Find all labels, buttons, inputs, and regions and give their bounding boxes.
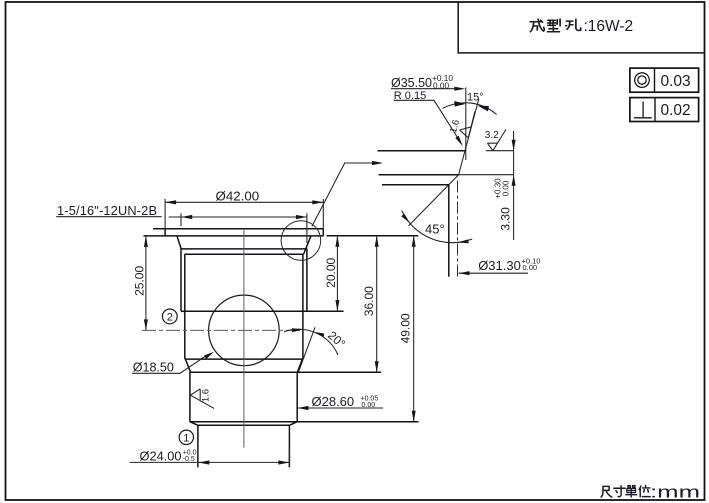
svg-text:Ø24.00: Ø24.00 xyxy=(140,448,182,463)
svg-text:2: 2 xyxy=(167,311,173,323)
svg-text:0.02: 0.02 xyxy=(661,102,691,119)
svg-text:15°: 15° xyxy=(467,92,484,104)
svg-text:3.30: 3.30 xyxy=(499,207,513,231)
svg-text:-0.5: -0.5 xyxy=(183,456,195,463)
svg-text:Ø28.60: Ø28.60 xyxy=(312,394,355,409)
svg-text:Ø18.50: Ø18.50 xyxy=(133,360,174,374)
svg-text:25.00: 25.00 xyxy=(133,266,147,296)
svg-text:1-5/16"-12UN-2B: 1-5/16"-12UN-2B xyxy=(57,203,157,218)
svg-text:45°: 45° xyxy=(425,222,445,237)
svg-text:0.00: 0.00 xyxy=(523,263,538,272)
svg-text::mm: :mm xyxy=(650,483,700,502)
svg-text:R 0.15: R 0.15 xyxy=(394,90,426,102)
svg-text:0.00: 0.00 xyxy=(362,402,376,409)
svg-text:3.2: 3.2 xyxy=(485,130,499,141)
svg-text:0.00: 0.00 xyxy=(433,80,450,90)
svg-text:0.03: 0.03 xyxy=(661,73,691,90)
svg-text:20.00: 20.00 xyxy=(324,257,338,287)
svg-text:49.00: 49.00 xyxy=(398,313,412,343)
svg-text:1.6: 1.6 xyxy=(201,389,212,402)
svg-text:0.00: 0.00 xyxy=(501,180,510,196)
svg-text:Ø31.30: Ø31.30 xyxy=(478,258,521,273)
svg-text::16W-2: :16W-2 xyxy=(584,18,634,35)
svg-text:36.00: 36.00 xyxy=(362,286,376,316)
svg-text:1: 1 xyxy=(183,432,189,444)
svg-text:Ø42.00: Ø42.00 xyxy=(216,188,260,203)
svg-text:Ø35.50: Ø35.50 xyxy=(391,76,432,90)
